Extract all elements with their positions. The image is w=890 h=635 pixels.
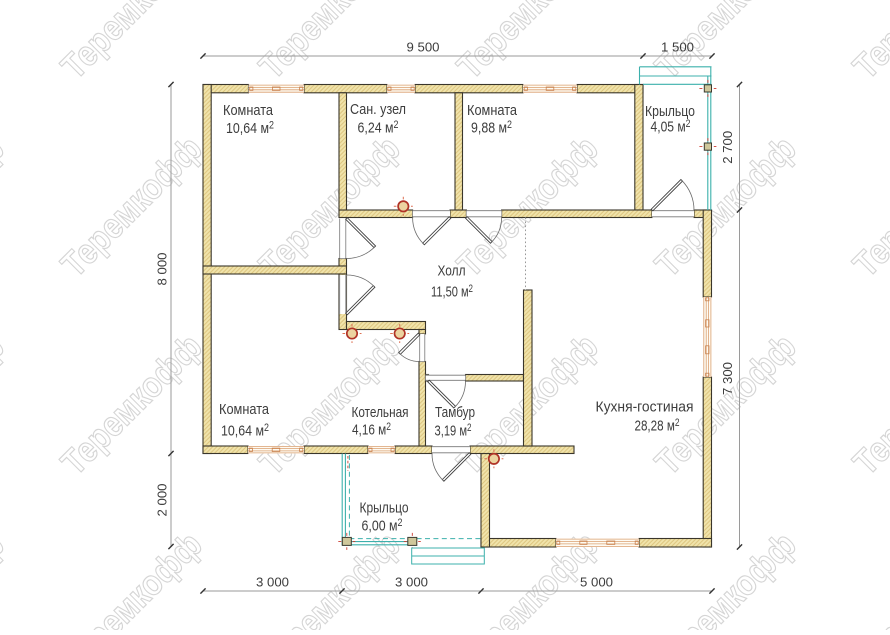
svg-text:28,28 м2: 28,28 м2 [635,417,680,435]
svg-text:Котельная: Котельная [352,404,409,421]
svg-text:Комната: Комната [467,102,518,119]
svg-text:Комната: Комната [219,401,270,418]
svg-text:6,00 м2: 6,00 м2 [362,517,403,535]
svg-text:3,19 м2: 3,19 м2 [435,422,472,440]
svg-text:Тамбур: Тамбур [435,404,475,421]
svg-text:5 000: 5 000 [580,576,613,590]
svg-text:2 700: 2 700 [721,131,735,164]
svg-text:Холл: Холл [438,262,466,279]
svg-text:2 000: 2 000 [156,483,170,516]
svg-text:6,24 м2: 6,24 м2 [358,119,399,137]
svg-text:11,50 м2: 11,50 м2 [431,283,473,301]
svg-text:9,88 м2: 9,88 м2 [471,119,512,137]
svg-text:Сан. узел: Сан. узел [350,101,406,118]
svg-text:9 500: 9 500 [407,41,440,55]
svg-text:1 500: 1 500 [661,41,694,55]
svg-text:Кухня-гостиная: Кухня-гостиная [596,398,694,415]
svg-text:Крыльцо: Крыльцо [360,499,409,516]
svg-text:Комната: Комната [223,102,274,119]
svg-text:10,64 м2: 10,64 м2 [226,119,274,137]
svg-text:8 000: 8 000 [156,252,170,285]
svg-text:4,16 м2: 4,16 м2 [352,421,391,439]
svg-text:3 000: 3 000 [256,576,289,590]
svg-text:7 300: 7 300 [721,362,735,395]
svg-text:10,64 м2: 10,64 м2 [221,422,269,440]
svg-text:4,05 м2: 4,05 м2 [651,118,691,136]
svg-text:3 000: 3 000 [395,576,428,590]
